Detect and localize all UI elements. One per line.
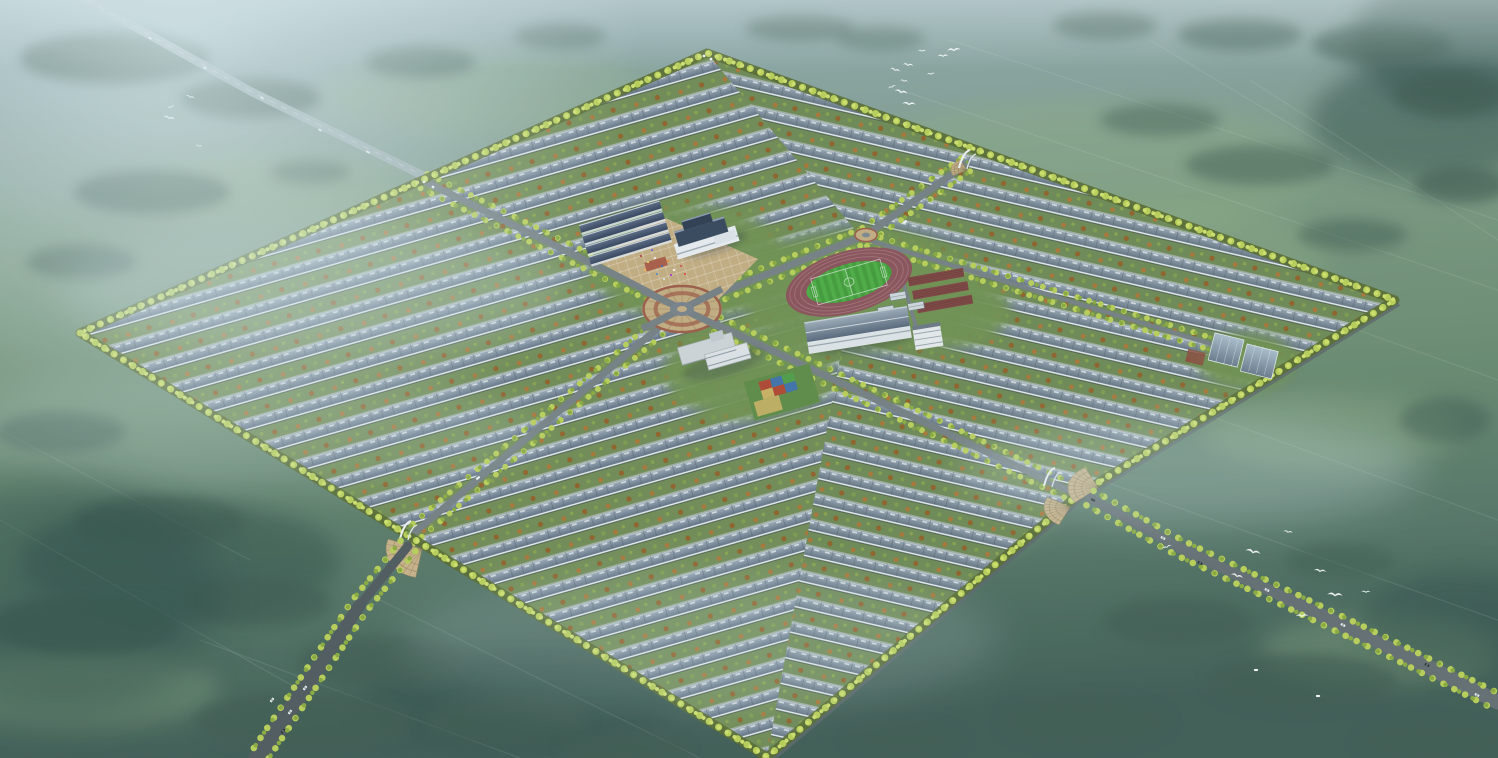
rendering-canvas xyxy=(0,0,1498,758)
aerial-masterplan-rendering xyxy=(0,0,1498,758)
fog-overlay xyxy=(0,0,1498,758)
